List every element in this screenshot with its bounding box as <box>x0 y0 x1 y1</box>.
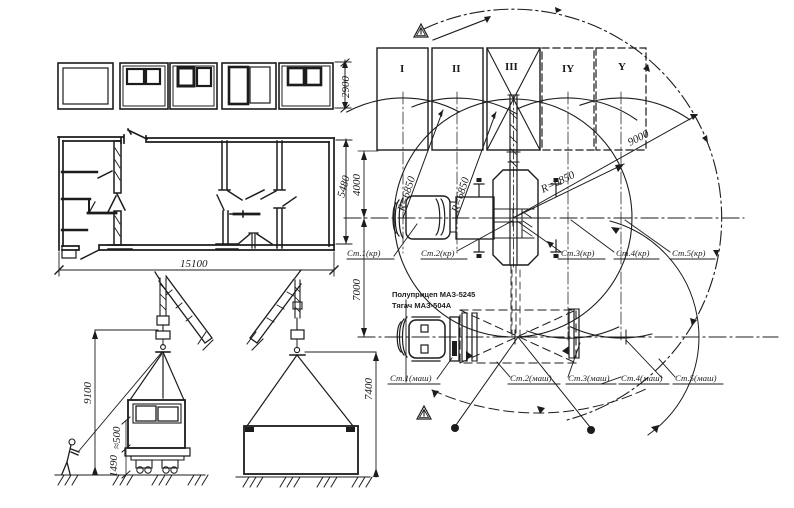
svg-text:III: III <box>505 61 518 73</box>
svg-text:4000: 4000 <box>351 174 363 197</box>
svg-text:I: I <box>400 63 404 75</box>
svg-text:1490: 1490 <box>108 455 120 478</box>
svg-text:Ст.2(кр): Ст.2(кр) <box>421 248 454 258</box>
svg-text:Ст.1(маш): Ст.1(маш) <box>390 373 432 383</box>
svg-text:Полуприцеп МАЗ-5245: Полуприцеп МАЗ-5245 <box>392 290 475 299</box>
svg-text:Ст.4(кр): Ст.4(кр) <box>616 248 649 258</box>
svg-text:7400: 7400 <box>363 378 375 401</box>
svg-text:Ст.5(кр): Ст.5(кр) <box>672 248 705 258</box>
svg-text:≈500: ≈500 <box>111 426 123 449</box>
svg-text:II: II <box>452 63 461 75</box>
svg-text:Тягач МАЗ-504А: Тягач МАЗ-504А <box>392 301 452 310</box>
svg-text:Ст.2(маш): Ст.2(маш) <box>510 373 552 383</box>
svg-text:7000: 7000 <box>351 279 363 302</box>
svg-text:2900: 2900 <box>340 76 352 99</box>
svg-text:Y: Y <box>618 61 626 73</box>
svg-text:Ст.5(маш): Ст.5(маш) <box>675 373 717 383</box>
svg-text:Ст.4(маш): Ст.4(маш) <box>621 373 663 383</box>
svg-text:Ст.3(маш): Ст.3(маш) <box>568 373 610 383</box>
svg-text:IY: IY <box>562 63 574 75</box>
svg-text:15100: 15100 <box>180 258 208 270</box>
svg-text:9100: 9100 <box>82 382 94 405</box>
svg-text:Ст.3(кр): Ст.3(кр) <box>561 248 594 258</box>
